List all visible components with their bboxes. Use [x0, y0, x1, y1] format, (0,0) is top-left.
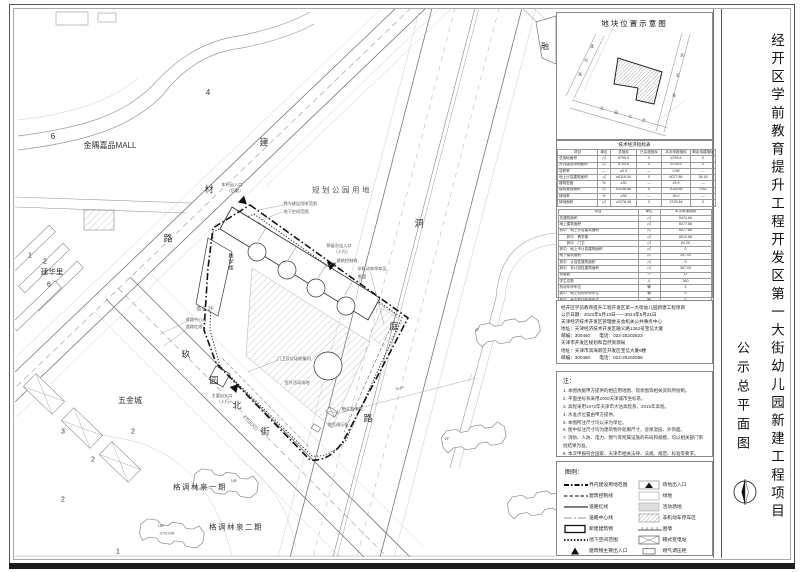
legend-label: 绿地 — [663, 492, 673, 499]
legend-item: 道路中心线 — [563, 512, 637, 523]
legend-item: 界内建设用地范围 — [563, 479, 637, 490]
list-line: 1. 本图依据甲方提供的相应用地图、现状图等相关资料所绘制。 — [563, 387, 707, 395]
list-line: 地址：天津经济技术开发区融义路1262号宝信大厦 — [561, 325, 708, 332]
control-line-icon — [563, 491, 589, 501]
list-line: 天津市开发区规划和自然资源局 — [561, 339, 708, 346]
list-line: 邮编：300450 电话：022-25202068 — [561, 354, 708, 361]
notes-title: 注： — [557, 372, 712, 387]
legend-label: 道路红线 — [589, 503, 608, 510]
list-line: 8. 本次申报符合国家、天津市相关法律、法规、规范、标准等要求。 — [563, 450, 707, 458]
legend-item: 箱式变电站 — [637, 534, 711, 545]
green-space-icon — [637, 491, 663, 501]
boundary-line-icon — [563, 480, 589, 490]
indicator-table-upper: 项目单位总指标已实施指标本次申报指标剩余待建指标总用地面积㎡6795.60679… — [557, 149, 716, 207]
legend-item: 围墙 — [637, 523, 711, 534]
indicator-table-box: 技术经济指标表 项目单位总指标已实施指标本次申报指标剩余待建指标总用地面积㎡67… — [556, 140, 713, 298]
legend-item: 绿地 — [637, 490, 711, 501]
legend-item: 道路红线 — [563, 501, 637, 512]
legend-label: 建筑控制线 — [589, 492, 613, 499]
bike-parking-icon — [637, 513, 663, 523]
legend-item: 燃气调压柜 — [637, 545, 711, 556]
list-line: 4. 水准点位置由甲方提供。 — [563, 411, 707, 419]
list-line: 地址：天津市滨海新区开发区宝信大厦6楼 — [561, 347, 708, 354]
legend-label: 界内建设用地范围 — [589, 481, 627, 488]
list-line: 邮编：300450 电话：022-25202823 — [561, 332, 708, 339]
road-redline-icon — [563, 502, 589, 512]
legend-label: 箱式变电站 — [663, 536, 687, 543]
notes-box: 注： 1. 本图依据甲方提供的相应用地图、现状图等相关资料所绘制。2. 平面坐标… — [556, 371, 713, 457]
sheet-title-vertical: 经开区学前教育提升工程开发区第一大街幼儿园新建工程项目 — [766, 33, 786, 522]
legend-label: 场地出入口 — [663, 481, 687, 488]
gas-cabinet-icon — [637, 546, 663, 556]
legend-box: 图例： 界内建设用地范围 场地出入口 建筑控制线 绿地 道路红线 — [556, 461, 713, 556]
list-line: 3. 高程采用1972年天津市大沽高程系，2015年高程。 — [563, 403, 707, 411]
legend-label: 非机动车停车区 — [663, 514, 697, 521]
inset-title: 地块位置示意图 — [557, 13, 712, 29]
drawing-sheet: 金隅嘉品MALL 规划公园用地 建 材 路 洞 庭 路 玖 园 北 街 建华里 … — [0, 0, 810, 572]
notes-list: 1. 本图依据甲方提供的相应用地图、现状图等相关资料所绘制。2. 平面坐标系采用… — [557, 387, 712, 458]
fence-icon — [637, 524, 663, 534]
titleblock-separator — [721, 9, 722, 558]
table-title: 技术经济指标表 — [557, 141, 712, 149]
sheet-subtitle-vertical: 公示总平面图 — [733, 341, 752, 455]
legend-label: 活动场地 — [663, 503, 682, 510]
legend-item: 建筑物主要出入口 — [563, 545, 637, 556]
legend-item: 场地出入口 — [637, 479, 711, 490]
legend-item: 建筑控制线 — [563, 490, 637, 501]
new-building-icon — [563, 524, 589, 534]
list-line: 5. 本图所注尺寸均以米为单位。 — [563, 419, 707, 427]
panel-separator — [713, 9, 714, 558]
legend-label: 燃气调压柜 — [663, 547, 687, 554]
legend-item: 非机动车停车区 — [637, 512, 711, 523]
legend-item: 地下空间范围 — [563, 534, 637, 545]
list-line: 6. 图中标注尺寸均为建筑物外轮廓尺寸，含保温层、外饰面。 — [563, 426, 707, 434]
activity-ground-icon — [637, 502, 663, 512]
building-entrance-icon — [563, 546, 589, 556]
legend-label: 地下空间范围 — [589, 536, 618, 543]
legend-item: 活动场地 — [637, 501, 711, 512]
road-centerline-icon — [563, 513, 589, 523]
list-line: 公示日期：2024年5月13日——2024年5月21日 — [561, 311, 708, 318]
project-info-box: 经开区学前教育提升工程开发区第一大街幼儿园新建工程项目公示日期：2024年5月1… — [556, 300, 713, 364]
underground-range-icon — [563, 535, 589, 545]
legend-label: 新建建筑物 — [589, 525, 613, 532]
list-line: 天津经济技术开发区管理委员会机关公共事务中心 — [561, 318, 708, 325]
list-line: 7. 消防、人防、电力、燃气等附属设施的布局和规模，均以相关部门审批结果为准。 — [563, 434, 707, 450]
site-entrance-icon — [637, 480, 663, 490]
legend-item: 新建建筑物 — [563, 523, 637, 534]
legend-title: 图例： — [557, 462, 712, 478]
project-info: 经开区学前教育提升工程开发区第一大街幼儿园新建工程项目公示日期：2024年5月1… — [557, 301, 712, 364]
legend-label: 建筑物主要出入口 — [589, 547, 627, 554]
location-inset-box: 地块位置示意图 — [556, 12, 713, 140]
legend-label: 围墙 — [663, 525, 673, 532]
legend-label: 道路中心线 — [589, 514, 613, 521]
transformer-icon — [637, 535, 663, 545]
legend-grid: 界内建设用地范围 场地出入口 建筑控制线 绿地 道路红线 活动场地 — [557, 478, 712, 556]
list-line: 2. 平面坐标系采用2000天津城市坐标系。 — [563, 395, 707, 403]
list-line: 经开区学前教育提升工程开发区第一大街幼儿园新建工程项目 — [561, 304, 708, 311]
